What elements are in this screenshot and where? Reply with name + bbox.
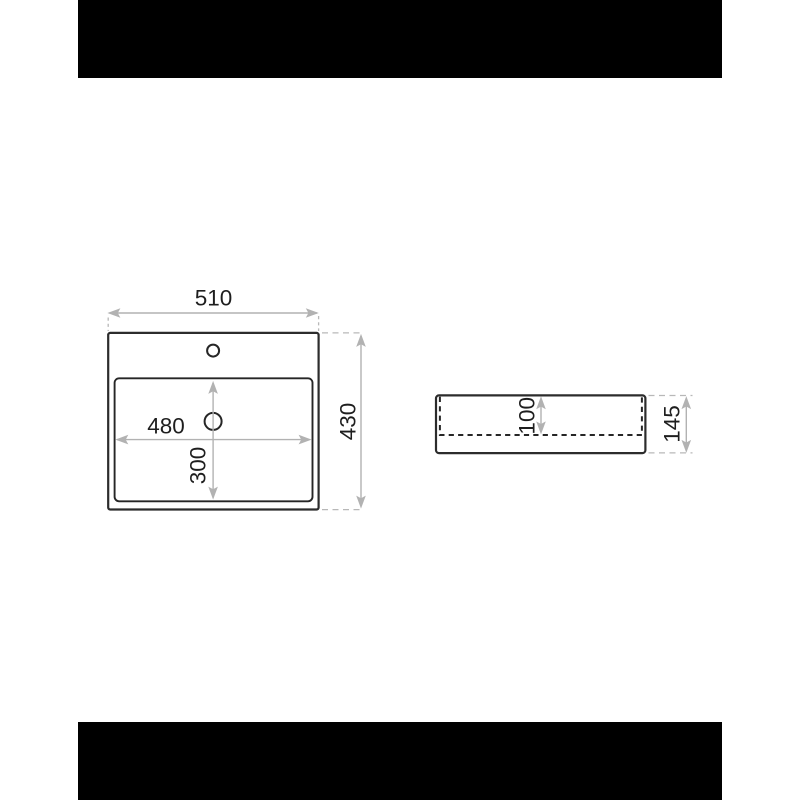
svg-text:480: 480	[147, 414, 185, 439]
svg-text:510: 510	[195, 286, 233, 311]
svg-text:300: 300	[186, 447, 211, 485]
svg-text:430: 430	[335, 403, 360, 441]
svg-text:145: 145	[659, 405, 684, 443]
svg-text:100: 100	[515, 397, 540, 435]
